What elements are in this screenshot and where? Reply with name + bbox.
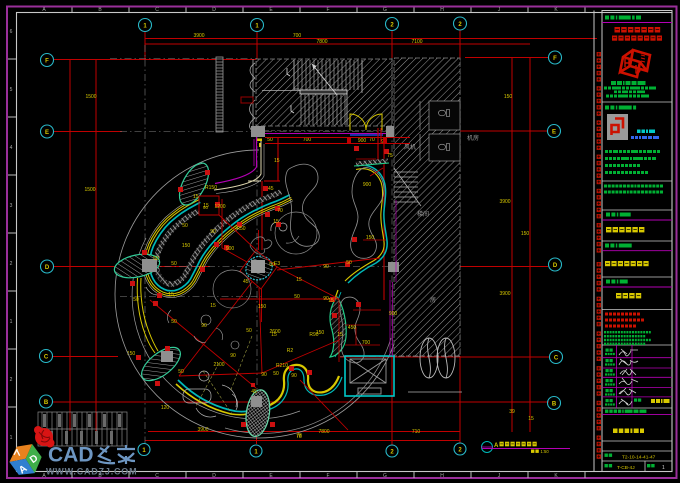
svg-text:45: 45 [268, 186, 274, 192]
svg-text:H: H [440, 7, 444, 13]
svg-text:7800: 7800 [316, 39, 327, 45]
svg-text:1200: 1200 [214, 204, 225, 210]
svg-text:3: 3 [10, 203, 13, 209]
svg-text:C: C [554, 356, 559, 362]
svg-text:5: 5 [10, 87, 13, 93]
svg-text:1:50: 1:50 [541, 449, 550, 454]
svg-text:6: 6 [10, 29, 13, 35]
svg-text:1: 1 [10, 319, 13, 325]
svg-text:7100: 7100 [411, 39, 422, 45]
svg-text:15: 15 [337, 332, 343, 338]
svg-text:15: 15 [296, 277, 302, 283]
svg-text:45: 45 [251, 389, 257, 395]
svg-text:15: 15 [328, 298, 334, 304]
svg-text:450: 450 [348, 325, 357, 331]
svg-text:CAD: CAD [48, 444, 94, 467]
svg-text:700: 700 [293, 33, 302, 39]
svg-text:15: 15 [274, 158, 280, 164]
svg-text:F: F [326, 7, 329, 13]
svg-text:39: 39 [509, 409, 515, 415]
svg-text:78: 78 [296, 433, 302, 439]
svg-text:900: 900 [226, 246, 235, 252]
svg-text:D: D [212, 473, 216, 479]
svg-text:R2: R2 [287, 348, 294, 354]
svg-text:45: 45 [243, 279, 249, 285]
svg-text:F: F [45, 59, 49, 65]
svg-text:75: 75 [387, 153, 393, 159]
svg-text:15: 15 [528, 416, 534, 422]
svg-text:2: 2 [10, 261, 13, 267]
svg-text:90: 90 [210, 229, 216, 235]
svg-text:1: 1 [10, 435, 13, 441]
svg-text:T2-10-14-41-47: T2-10-14-41-47 [622, 455, 656, 461]
svg-text:R210: R210 [276, 363, 288, 369]
svg-text:C: C [44, 355, 49, 361]
svg-text:50: 50 [182, 223, 188, 229]
svg-text:1500: 1500 [84, 187, 95, 193]
svg-text:风机: 风机 [404, 143, 416, 151]
svg-text:50: 50 [171, 261, 177, 267]
svg-text:900: 900 [389, 311, 398, 317]
svg-text:90: 90 [291, 373, 297, 379]
svg-text:3900: 3900 [499, 199, 510, 205]
svg-text:1: 1 [662, 465, 665, 471]
svg-text:90: 90 [261, 372, 267, 378]
svg-text:710: 710 [412, 429, 421, 435]
svg-text:C: C [155, 7, 159, 13]
svg-text:900: 900 [363, 182, 372, 188]
svg-text:B: B [552, 402, 557, 408]
svg-text:4: 4 [10, 145, 13, 151]
svg-text:F: F [326, 473, 329, 479]
svg-text:15: 15 [273, 219, 279, 225]
svg-text:150: 150 [366, 235, 375, 241]
svg-text:H: H [440, 473, 444, 479]
svg-text:WWW.CADZJ.COM: WWW.CADZJ.COM [46, 467, 137, 477]
svg-text:F: F [553, 56, 557, 62]
svg-text:D: D [212, 7, 216, 13]
svg-text:D: D [553, 263, 558, 269]
svg-text:150: 150 [182, 243, 191, 249]
svg-text:90: 90 [201, 323, 207, 329]
svg-text:70: 70 [277, 208, 283, 214]
svg-text:G: G [383, 473, 387, 479]
svg-text:房: 房 [430, 296, 436, 304]
svg-text:150: 150 [521, 231, 530, 237]
svg-text:15: 15 [210, 303, 216, 309]
svg-text:50: 50 [273, 371, 279, 377]
svg-text:50: 50 [171, 319, 177, 325]
svg-text:150: 150 [504, 94, 513, 100]
svg-text:50: 50 [153, 256, 159, 262]
svg-text:R150: R150 [205, 185, 217, 191]
svg-text:90: 90 [230, 353, 236, 359]
svg-text:90: 90 [323, 264, 329, 270]
svg-text:7800: 7800 [318, 429, 329, 435]
svg-text:3900: 3900 [193, 33, 204, 39]
svg-text:700: 700 [362, 340, 371, 346]
svg-text:E3: E3 [274, 261, 280, 267]
svg-text:E: E [552, 130, 556, 136]
svg-text:1500: 1500 [85, 94, 96, 100]
svg-text:50: 50 [178, 369, 184, 375]
svg-text:50: 50 [294, 294, 300, 300]
svg-text:120: 120 [161, 405, 170, 411]
svg-text:B: B [44, 400, 49, 406]
svg-text:R90: R90 [309, 332, 318, 338]
svg-text:T-CB-4J: T-CB-4J [617, 465, 635, 471]
svg-text:50: 50 [346, 260, 352, 266]
svg-text:3900: 3900 [499, 291, 510, 297]
svg-text:150: 150 [258, 304, 267, 310]
svg-text:机房: 机房 [467, 134, 479, 142]
svg-text:50: 50 [246, 328, 252, 334]
svg-text:50: 50 [269, 262, 275, 268]
svg-text:R50: R50 [236, 226, 245, 232]
svg-text:D: D [45, 265, 50, 271]
svg-text:15: 15 [203, 203, 209, 209]
svg-text:2600: 2600 [269, 329, 280, 335]
svg-text:15: 15 [168, 292, 174, 298]
svg-text:E: E [45, 130, 49, 136]
svg-text:15: 15 [193, 194, 199, 200]
svg-text:G: G [383, 7, 387, 13]
svg-text:C: C [155, 473, 159, 479]
svg-text:2100: 2100 [213, 362, 224, 368]
svg-text:梯间: 梯间 [417, 210, 429, 218]
svg-text:2: 2 [10, 377, 13, 383]
